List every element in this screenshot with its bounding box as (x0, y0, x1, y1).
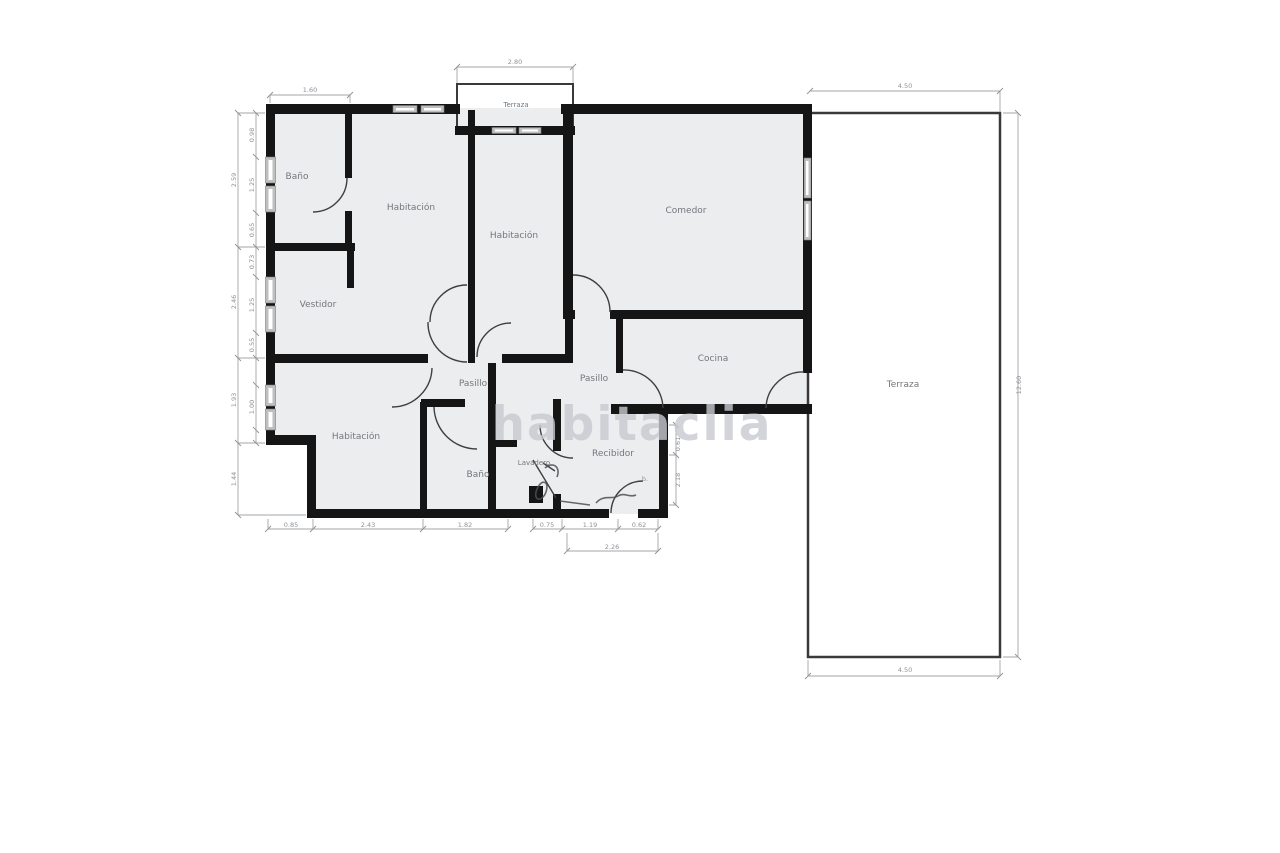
dim-left-inner-5: 1.25 (248, 298, 256, 312)
room-label-terraza: Terraza (886, 380, 920, 390)
dim-left-inner-3: 0.65 (248, 223, 256, 237)
room-label-habitacion-1: Habitación (387, 202, 435, 213)
dim-top-left: 1.60 (303, 86, 317, 94)
dim-bottom-6: 0.62 (632, 521, 646, 529)
room-label-vestidor: Vestidor (300, 300, 337, 310)
room-label-pasillo-2: Pasillo (580, 374, 609, 384)
dim-bottom-3: 1.82 (458, 521, 472, 529)
dim-left-inner-6: 0.55 (248, 338, 256, 352)
room-label-cocina: Cocina (698, 354, 728, 364)
floor-plan-page: 1.60 2.80 4.50 4.50 12.60 2.59 2.46 1.93… (0, 0, 1280, 853)
dim-left-inner-2: 1.25 (248, 178, 256, 192)
floor-plan-drawing: 1.60 2.80 4.50 4.50 12.60 2.59 2.46 1.93… (0, 0, 1280, 853)
dim-bottom-2: 2.43 (361, 521, 375, 529)
room-label-bano-1: Baño (286, 172, 309, 182)
dim-left-outer-4: 1.44 (230, 472, 238, 486)
room-label-bano-2: Baño (467, 470, 490, 480)
watermark-habitaclia: habitaclia (492, 397, 773, 452)
room-label-recibidor: Recibidor (592, 449, 634, 459)
dim-balcony: 2.80 (508, 58, 522, 66)
dim-bottom-5: 1.19 (583, 521, 597, 529)
dim-bottom-4: 0.75 (540, 521, 554, 529)
dim-left-inner-7: 1.00 (248, 400, 256, 414)
room-label-pasillo-1: Pasillo (459, 379, 488, 389)
room-label-terraza-balcon: Terraza (502, 101, 528, 109)
room-label-habitacion-3: Habitación (332, 431, 380, 442)
dim-entry-side-2: 2.18 (674, 473, 682, 487)
dim-bottom-total: 2.26 (605, 543, 619, 551)
dim-terrace-top: 4.50 (898, 82, 912, 90)
dim-left-inner-4: 0.73 (248, 255, 256, 269)
room-label-habitacion-2: Habitación (490, 230, 538, 241)
dim-left-outer-1: 2.59 (230, 173, 238, 187)
room-label-lavadero: Lavadero (518, 459, 550, 467)
room-label-b-mark: b. (642, 475, 648, 483)
room-label-comedor: Comedor (665, 206, 706, 216)
dim-terrace-bottom: 4.50 (898, 666, 912, 674)
dim-left-outer-2: 2.46 (230, 295, 238, 309)
dim-bottom-1: 0.85 (284, 521, 298, 529)
dim-terrace-right: 12.60 (1015, 376, 1023, 395)
dim-left-outer-3: 1.93 (230, 393, 238, 407)
dim-left-inner-1: 0.98 (248, 128, 256, 142)
